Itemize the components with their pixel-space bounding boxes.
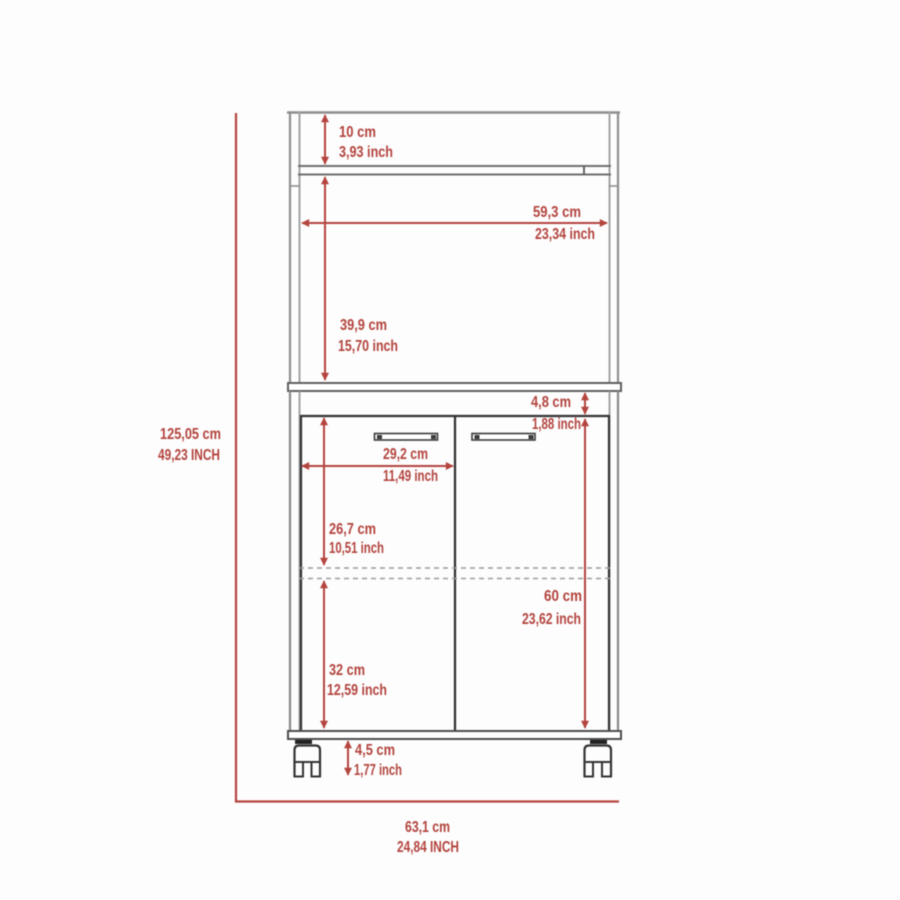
svg-text:125,05 cm: 125,05 cm (160, 426, 221, 443)
svg-text:29,2 cm: 29,2 cm (383, 446, 428, 463)
svg-text:1,77 inch: 1,77 inch (354, 762, 402, 779)
svg-text:11,49 inch: 11,49 inch (383, 468, 438, 485)
svg-text:3,93 inch: 3,93 inch (339, 144, 393, 161)
svg-text:49,23 INCH: 49,23 INCH (158, 447, 220, 464)
svg-text:10 cm: 10 cm (339, 124, 376, 141)
svg-text:26,7 cm: 26,7 cm (329, 521, 376, 538)
svg-text:23,34 inch: 23,34 inch (535, 226, 595, 243)
svg-text:60 cm: 60 cm (544, 588, 582, 605)
svg-text:63,1 cm: 63,1 cm (405, 819, 450, 836)
svg-text:32 cm: 32 cm (329, 662, 365, 679)
svg-text:1,88 inch: 1,88 inch (532, 416, 581, 433)
svg-text:24,84 INCH: 24,84 INCH (397, 839, 459, 856)
svg-text:39,9 cm: 39,9 cm (340, 317, 387, 334)
svg-text:4,8 cm: 4,8 cm (531, 394, 571, 411)
svg-text:12,59 inch: 12,59 inch (327, 682, 387, 699)
svg-text:59,3 cm: 59,3 cm (533, 204, 581, 221)
svg-text:10,51 inch: 10,51 inch (329, 540, 384, 557)
svg-text:15,70 inch: 15,70 inch (338, 338, 398, 355)
svg-text:4,5 cm: 4,5 cm (355, 742, 395, 759)
svg-text:23,62 inch: 23,62 inch (522, 611, 581, 628)
